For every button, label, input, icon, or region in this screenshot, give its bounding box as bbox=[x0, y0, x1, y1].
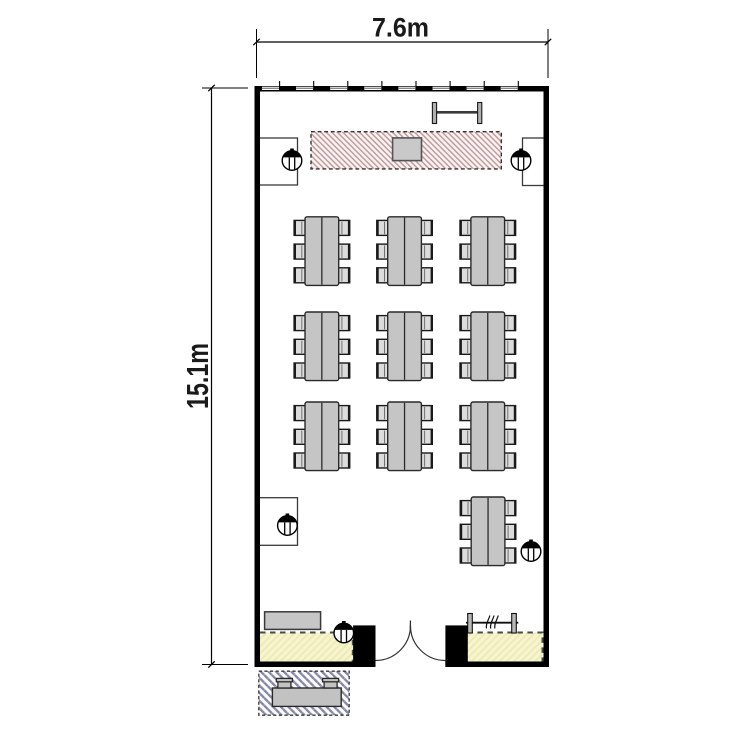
svg-text:7.6m: 7.6m bbox=[372, 12, 429, 42]
svg-text:15.1m: 15.1m bbox=[180, 343, 215, 409]
